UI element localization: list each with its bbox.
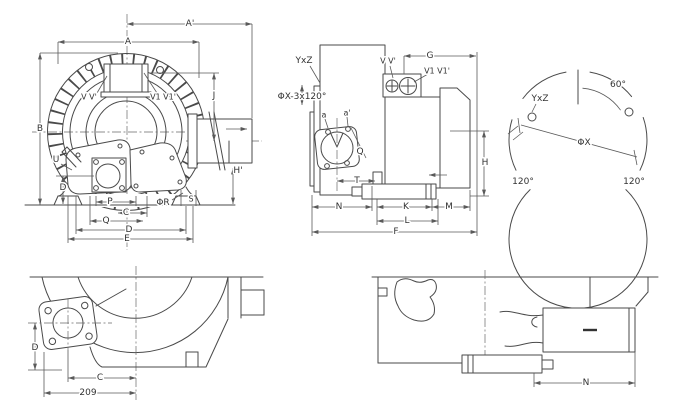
dim-n-bottom: N xyxy=(583,378,590,388)
base-profile xyxy=(90,319,228,367)
dim-p: P xyxy=(107,197,113,207)
motor-plan xyxy=(500,308,635,352)
hole-a-prime: a' xyxy=(343,109,350,118)
dim-a-prime: A' xyxy=(186,19,195,29)
dim-phix-pattern: ΦX-3x120° xyxy=(278,92,327,102)
motor-outline xyxy=(385,88,470,188)
drawing-canvas: V V' V1 V1' xyxy=(0,0,697,415)
dim-q-side: Q xyxy=(356,147,363,157)
dim-g: G xyxy=(427,51,434,61)
right-housing xyxy=(130,143,186,192)
bolt-circle-view: YxZ 60° ΦX 120° 120° xyxy=(508,70,647,308)
dim-e: E xyxy=(124,234,130,244)
muffler xyxy=(352,184,436,199)
muffler-plan xyxy=(462,355,553,373)
cable-line-2 xyxy=(505,342,543,346)
angle-60-arc xyxy=(583,88,621,110)
bottom-right-view: N xyxy=(372,270,658,388)
flange-arc xyxy=(509,120,516,170)
hole-a: a xyxy=(322,111,327,120)
port-v1-label: V1 V1' xyxy=(150,93,176,102)
dim-h: H xyxy=(482,158,489,168)
dim-q: Q xyxy=(102,216,109,226)
connector-line xyxy=(96,289,126,306)
leader-yxz-circle xyxy=(532,104,536,112)
dim-c-bottom: C xyxy=(97,373,103,383)
housing-arc-inner xyxy=(78,277,192,318)
dim-s: S xyxy=(188,195,193,204)
dim-m: M xyxy=(445,202,453,212)
bracket xyxy=(373,172,382,184)
dim-209: 209 xyxy=(79,388,96,398)
housing-bolt xyxy=(86,64,93,71)
outlet-duct xyxy=(188,112,252,170)
dim-phi-r: ΦR xyxy=(156,198,169,208)
dim-j: J xyxy=(212,91,216,101)
housing-bolt xyxy=(157,67,164,74)
dim-n-side: N xyxy=(336,202,343,212)
blower-technical-drawing: V V' V1 V1' xyxy=(0,0,697,415)
angle-60: 60° xyxy=(610,80,626,90)
side-view: V V' V1 V1' YxZ ΦX-3x120° a a' xyxy=(278,45,489,237)
cable-line xyxy=(500,311,543,315)
pump-housings xyxy=(66,140,186,194)
bottom-left-view: D C 209 xyxy=(28,266,264,400)
dim-phix: ΦX xyxy=(577,138,590,148)
dim-d-bottom: D xyxy=(32,343,39,353)
outlet-duct-plan xyxy=(228,277,264,318)
bolt-hole xyxy=(528,113,536,121)
dim-l: L xyxy=(404,216,409,226)
dim-c: C xyxy=(123,208,129,218)
bolt-hole xyxy=(625,108,633,116)
dim-f: F xyxy=(393,227,398,237)
front-view: V V' V1 V1' xyxy=(25,14,262,250)
terminal-box-side xyxy=(383,74,421,97)
dim-a: A xyxy=(125,37,132,47)
bottom-right-dimensions: N xyxy=(534,352,635,388)
dim-d-left: D xyxy=(60,183,67,193)
port-v1-side: V1 V1' xyxy=(424,67,450,76)
port-v-side: V V' xyxy=(380,57,396,66)
flange-arc xyxy=(509,190,647,309)
cable-hook xyxy=(532,317,537,327)
dim-yxz-circle: YxZ xyxy=(531,94,549,104)
dim-yxz: YxZ xyxy=(295,56,313,66)
dim-t: T xyxy=(353,176,360,186)
angle-120-right: 120° xyxy=(623,177,645,187)
terminal-box xyxy=(101,64,151,97)
cover-plate-2 xyxy=(310,112,314,186)
scroll-cut xyxy=(395,279,437,321)
port-v-label: V V' xyxy=(81,93,97,102)
leader-yxz xyxy=(310,66,320,83)
flange-arc xyxy=(640,118,647,171)
angle-120-left: 120° xyxy=(512,177,534,187)
dim-b: B xyxy=(37,124,43,134)
dim-u: U xyxy=(53,155,60,165)
dim-h-prime: H' xyxy=(233,166,242,176)
